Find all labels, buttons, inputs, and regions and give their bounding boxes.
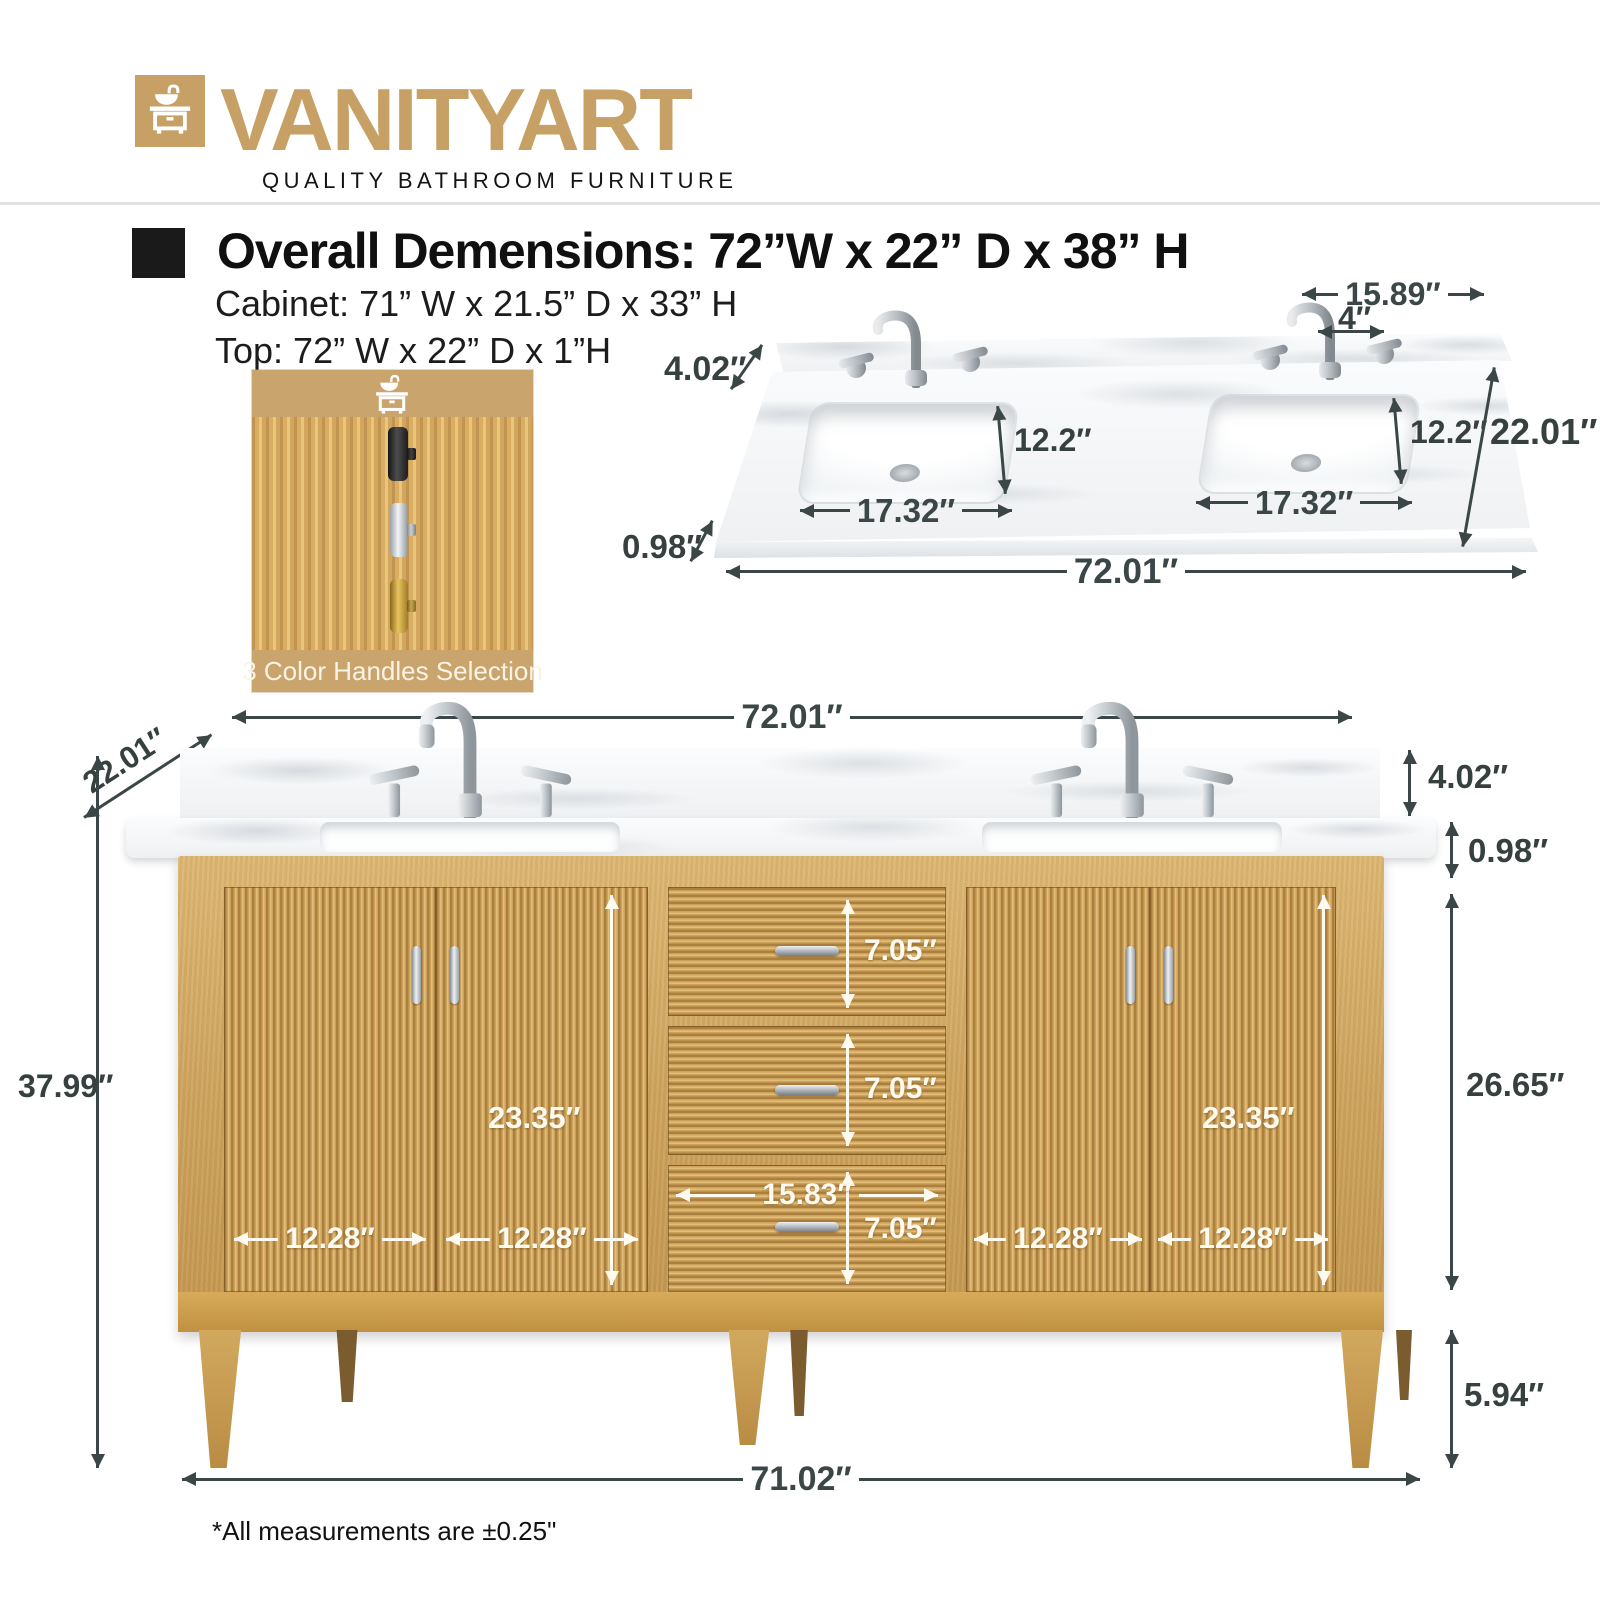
- dim-overall-height: 37.99″: [18, 1070, 113, 1102]
- cabinet-spec: Cabinet: 71” W x 21.5” D x 33” H: [215, 283, 737, 325]
- brand-tagline: QUALITY BATHROOM FURNITURE: [262, 168, 738, 194]
- right-sink-rim-front: [982, 822, 1282, 852]
- inset-wood-panel: [252, 417, 533, 650]
- inset-header: [252, 370, 533, 417]
- dim-drawer-width: 15.83″: [676, 1180, 938, 1210]
- cabinet-leg-back-center: [788, 1330, 810, 1416]
- dim-door-2-width: 12.28″: [446, 1224, 638, 1254]
- vanity-sink-icon: [370, 373, 414, 417]
- handles-inset: 3 Color Handles Selection: [252, 370, 533, 692]
- dim-top-thickness-front: 0.98″: [1468, 834, 1548, 867]
- dimension-arrow: [846, 900, 849, 1008]
- cabinet-leg-front-center: [726, 1330, 772, 1445]
- dim-right-inset-width: 15.89″: [1302, 278, 1484, 310]
- left-sink-basin-top: [798, 404, 1018, 502]
- door-3-handle: [1126, 946, 1135, 1004]
- brand-wordmark: VANITYART: [220, 76, 691, 164]
- dimension-arrow: [1318, 330, 1384, 333]
- dimension-arrow: [1450, 894, 1453, 1290]
- dim-overall-depth-top: 22.01″: [1490, 414, 1597, 450]
- product-dimension-sheet: VANITYART QUALITY BATHROOM FURNITURE Ove…: [0, 0, 1600, 1600]
- dimension-arrow: [846, 1034, 849, 1146]
- drawer-2-handle: [775, 1085, 839, 1095]
- dim-right-door-height: 23.35″: [1202, 1102, 1294, 1133]
- vanity-sink-icon: [142, 81, 198, 139]
- inset-caption: 3 Color Handles Selection: [242, 658, 543, 684]
- dim-overall-width-top: 72.01″: [726, 554, 1526, 589]
- dim-leg-height: 5.94″: [1464, 1378, 1544, 1411]
- right-faucet-front-view: [1017, 685, 1247, 818]
- footnote: *All measurements are ±0.25": [212, 1518, 556, 1544]
- brand-logo-mark: [135, 75, 205, 147]
- dim-drawer-1-height: 7.05″: [864, 936, 937, 966]
- drawer-1-handle: [775, 946, 839, 956]
- dim-right-sink-depth: 12.2″: [1410, 416, 1488, 448]
- door-1-handle: [412, 946, 421, 1004]
- dim-left-door-height: 23.35″: [488, 1102, 580, 1133]
- dim-left-sink-depth: 12.2″: [1014, 424, 1092, 456]
- dimension-arrow: [96, 756, 99, 1468]
- door-4-handle: [1164, 946, 1173, 1004]
- dim-cabinet-height: 26.65″: [1466, 1068, 1564, 1101]
- left-sink-drain: [888, 464, 921, 482]
- dim-cabinet-width: 71.02″: [182, 1462, 1420, 1496]
- cabinet-leg-front-left: [196, 1330, 244, 1468]
- dimension-arrow: [1450, 822, 1453, 878]
- dim-backsplash-height-front: 4.02″: [1428, 760, 1508, 793]
- cabinet-leg-back-left: [334, 1330, 360, 1402]
- dim-left-sink-width: 17.32″: [800, 494, 1012, 527]
- title-bullet: [132, 228, 185, 278]
- dim-door-4-width: 12.28″: [1158, 1224, 1328, 1254]
- dim-drawer-2-height: 7.05″: [864, 1074, 937, 1104]
- dim-door-3-width: 12.28″: [974, 1224, 1142, 1254]
- dim-drawer-3-height: 7.05″: [864, 1214, 937, 1244]
- left-faucet-front-view: [355, 685, 585, 818]
- drawer-3-handle: [775, 1222, 839, 1232]
- dimension-arrow: [1450, 1330, 1453, 1468]
- dim-door-1-width: 12.28″: [234, 1224, 426, 1254]
- gold-handle-option: [390, 579, 408, 633]
- top-spec: Top: 72” W x 22” D x 1”H: [215, 330, 611, 372]
- right-sink-drain: [1290, 454, 1323, 472]
- dimension-arrow: [1408, 750, 1411, 816]
- door-2-handle: [450, 946, 459, 1004]
- chrome-handle-option: [390, 503, 408, 557]
- black-handle-option: [388, 427, 408, 481]
- page-title: Overall Demensions: 72”W x 22” D x 38” H: [217, 222, 1189, 280]
- cabinet-base-rail: [178, 1292, 1384, 1332]
- cabinet-leg-back-right: [1394, 1330, 1414, 1400]
- dim-right-sink-width: 17.32″: [1196, 486, 1412, 519]
- left-faucet-top-view: [838, 296, 988, 388]
- right-sink-basin-top: [1198, 396, 1419, 492]
- left-sink-rim-front: [320, 822, 620, 852]
- cabinet-leg-front-right: [1338, 1330, 1386, 1468]
- page-separator: [0, 202, 1600, 205]
